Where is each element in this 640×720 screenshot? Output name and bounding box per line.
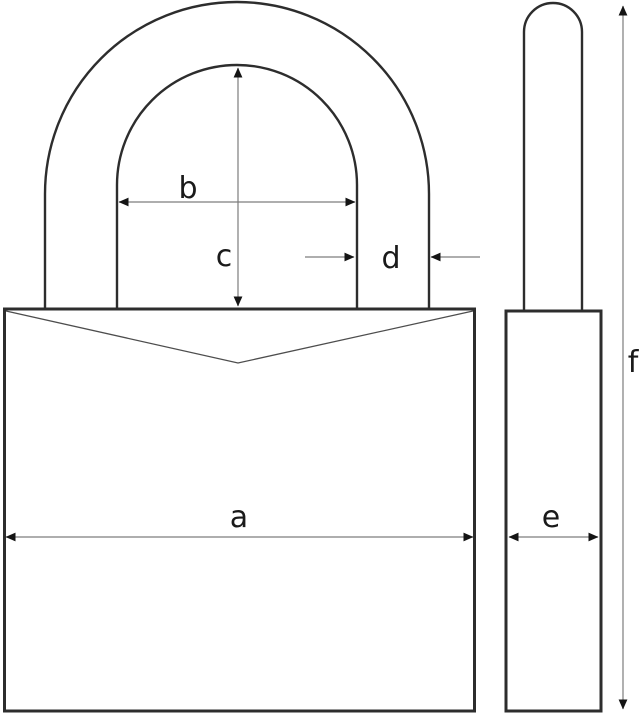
padlock-dimension-diagram: a b c d e f bbox=[0, 0, 640, 720]
dimension-c: c bbox=[216, 68, 238, 306]
dimension-f: f bbox=[623, 6, 640, 709]
shackle-outer-outline-front bbox=[45, 2, 429, 309]
shackle-inner-outline-front bbox=[117, 65, 357, 309]
shackle-outline-side bbox=[524, 3, 582, 311]
dimension-d: d bbox=[305, 241, 480, 276]
dimension-e-label: e bbox=[542, 500, 560, 535]
front-view bbox=[5, 2, 475, 711]
dimension-b-label: b bbox=[178, 171, 197, 206]
dimension-d-label: d bbox=[381, 241, 400, 276]
dimension-b: b bbox=[119, 171, 355, 206]
side-view bbox=[506, 3, 601, 711]
diagram-canvas: a b c d e f bbox=[0, 0, 640, 720]
dimension-c-label: c bbox=[216, 239, 233, 274]
dimension-a-label: a bbox=[230, 500, 248, 535]
dimension-f-label: f bbox=[628, 345, 640, 380]
